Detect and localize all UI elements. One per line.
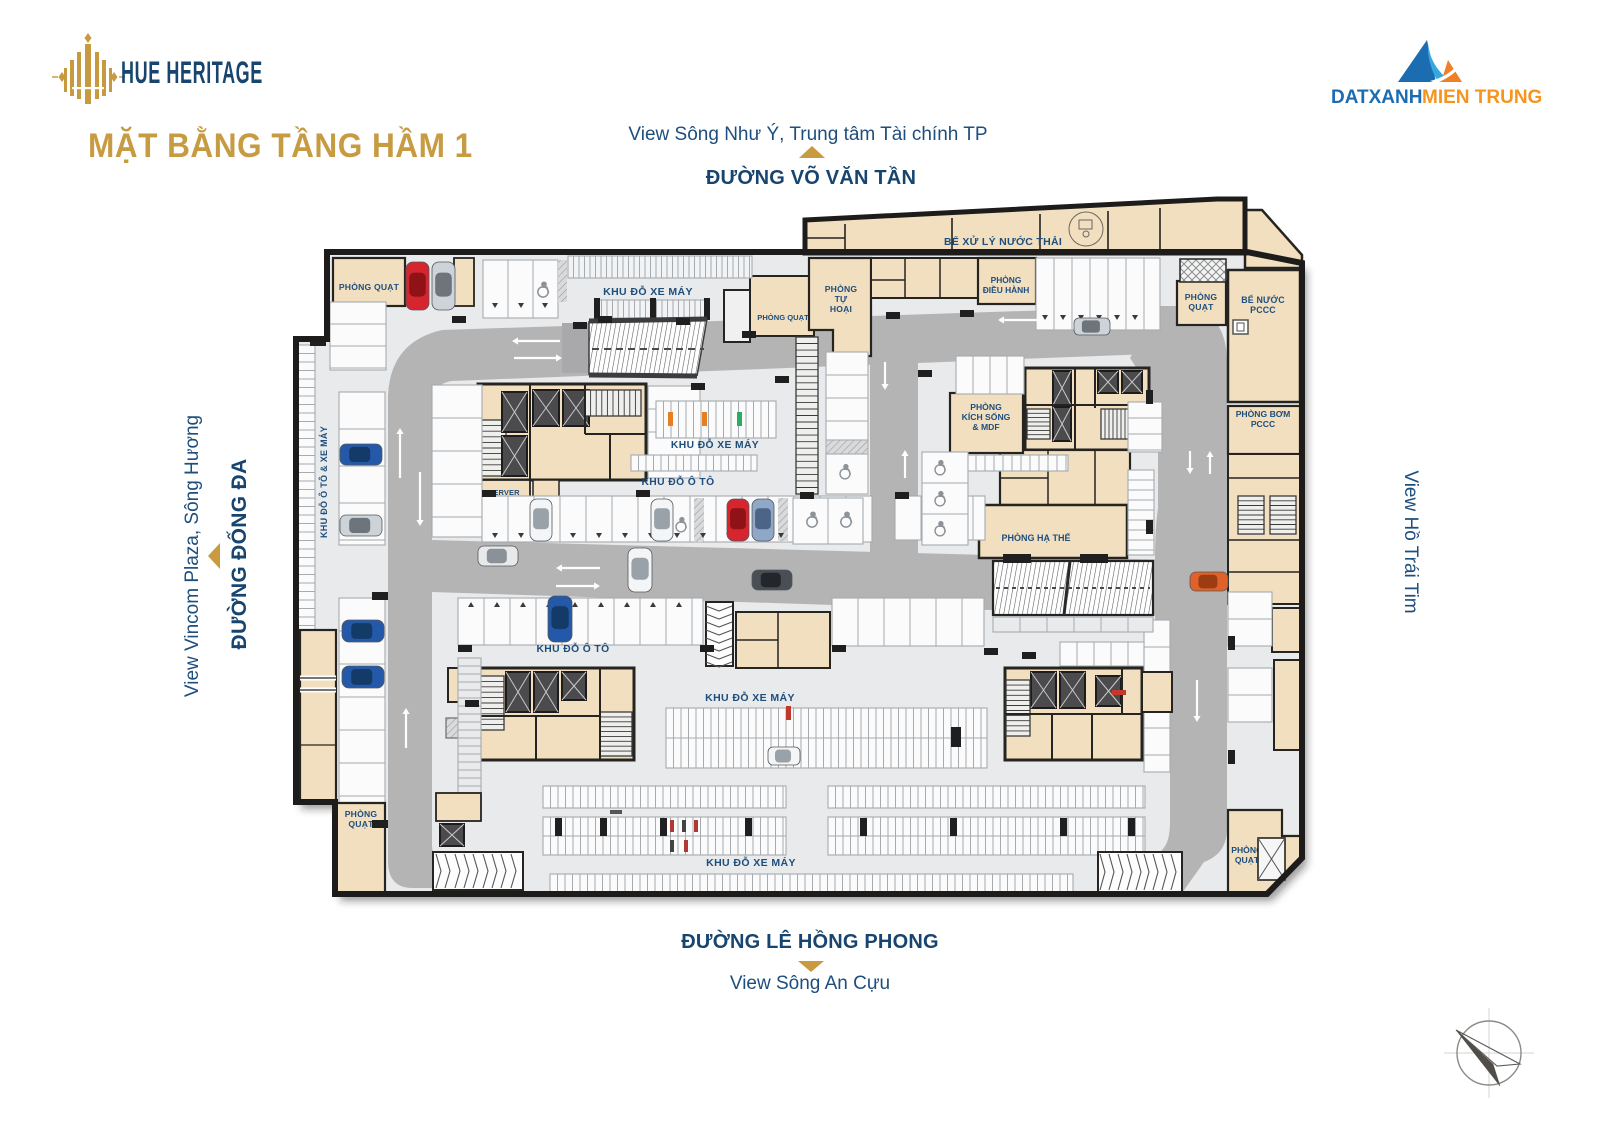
svg-text:PHÒNG QUẠT: PHÒNG QUẠT [757, 313, 809, 322]
svg-text:KHU ĐỖ XE MÁY: KHU ĐỖ XE MÁY [671, 438, 759, 451]
svg-text:PHÒNG QUẠT: PHÒNG QUẠT [339, 281, 400, 292]
svg-text:ĐƯỜNG ĐỐNG ĐA: ĐƯỜNG ĐỐNG ĐA [227, 459, 251, 650]
svg-text:MIEN TRUNG: MIEN TRUNG [1422, 87, 1542, 108]
svg-text:KHU ĐỖ XE MÁY: KHU ĐỖ XE MÁY [603, 285, 693, 298]
svg-text:KHU ĐỖ Ô TÔ: KHU ĐỖ Ô TÔ [641, 475, 714, 488]
svg-text:KHU ĐỖ Ô TÔ: KHU ĐỖ Ô TÔ [536, 642, 609, 655]
svg-text:View Sông Như Ý, Trung tâm Tài: View Sông Như Ý, Trung tâm Tài chính TP [628, 124, 987, 145]
svg-text:View Sông An Cựu: View Sông An Cựu [730, 973, 890, 994]
svg-text:HUE HERITAGE: HUE HERITAGE [121, 56, 263, 90]
svg-text:PHÒNGQUẠT: PHÒNGQUẠT [1185, 291, 1218, 312]
svg-text:ĐƯỜNG LÊ HỒNG PHONG: ĐƯỜNG LÊ HỒNG PHONG [681, 929, 938, 953]
svg-text:KHU ĐỖ XE MÁY: KHU ĐỖ XE MÁY [706, 856, 796, 869]
svg-text:View Vincom Plaza, Sông Hương: View Vincom Plaza, Sông Hương [182, 415, 203, 697]
svg-text:KHU ĐỖ XE MÁY: KHU ĐỖ XE MÁY [705, 691, 795, 704]
svg-text:PHÒNG HẠ THẾ: PHÒNG HẠ THẾ [1001, 532, 1070, 543]
svg-text:MẶT BẰNG TẦNG HẦM 1: MẶT BẰNG TẦNG HẦM 1 [88, 126, 473, 164]
svg-text:DATXANH: DATXANH [1331, 87, 1422, 108]
svg-text:BỂ XỬ LÝ NƯỚC THẢI: BỂ XỬ LÝ NƯỚC THẢI [944, 235, 1062, 248]
svg-text:View Hồ Trái Tim: View Hồ Trái Tim [1400, 470, 1421, 613]
svg-text:KHU ĐỖ Ô TÔ & XE MÁY: KHU ĐỖ Ô TÔ & XE MÁY [318, 426, 329, 538]
svg-text:ĐƯỜNG VÕ VĂN TẦN: ĐƯỜNG VÕ VĂN TẦN [706, 165, 916, 189]
